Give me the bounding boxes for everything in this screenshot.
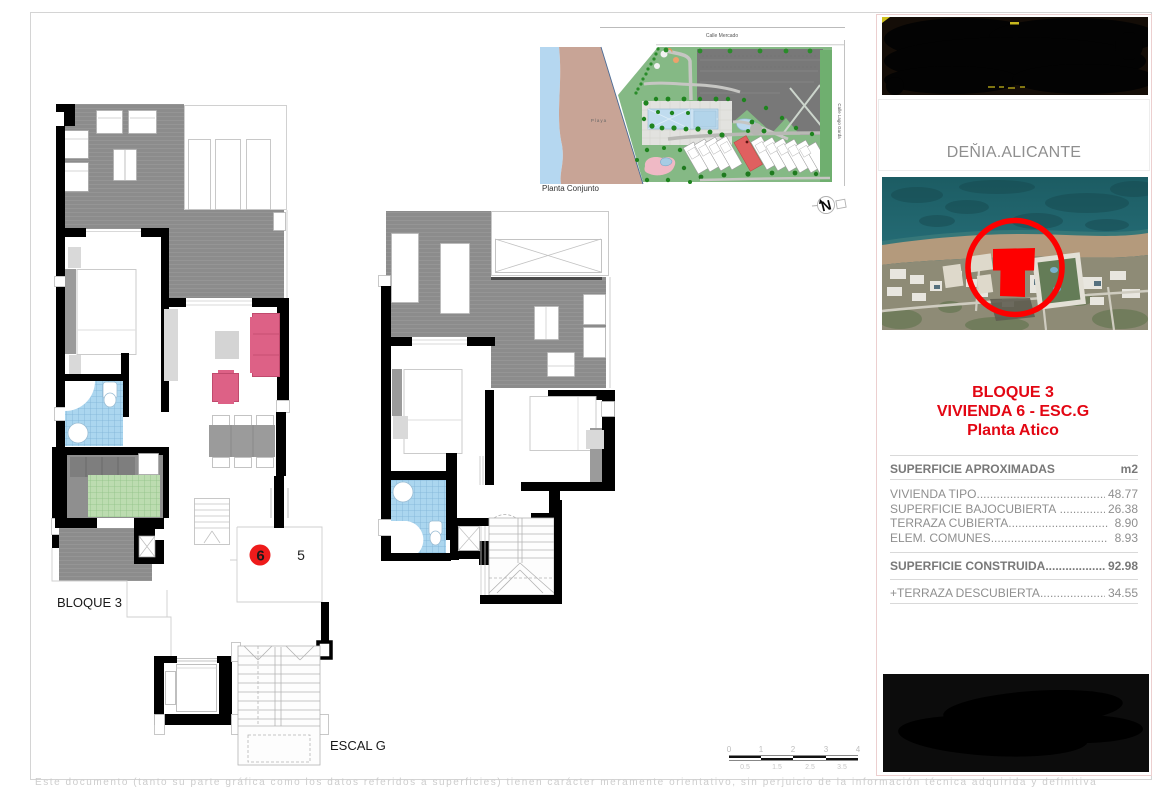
svg-text:Planta Conjunto: Planta Conjunto bbox=[542, 184, 599, 193]
svg-text:ESCAL G: ESCAL G bbox=[330, 738, 386, 753]
svg-text:4: 4 bbox=[856, 745, 861, 754]
svg-text:Playa: Playa bbox=[591, 118, 607, 123]
svg-text:2: 2 bbox=[791, 745, 796, 754]
svg-text:1.5: 1.5 bbox=[772, 764, 782, 771]
svg-text:6: 6 bbox=[256, 548, 264, 565]
svg-text:BLOQUE 3: BLOQUE 3 bbox=[57, 595, 122, 610]
svg-text:Calle Mercado: Calle Mercado bbox=[706, 33, 738, 39]
svg-text:Calle Lago Garda: Calle Lago Garda bbox=[837, 103, 842, 139]
svg-text:3: 3 bbox=[824, 745, 829, 754]
svg-text:2.5: 2.5 bbox=[805, 764, 815, 771]
svg-text:0.5: 0.5 bbox=[740, 764, 750, 771]
svg-text:0: 0 bbox=[727, 745, 732, 754]
svg-text:1: 1 bbox=[759, 745, 764, 754]
svg-text:3.5: 3.5 bbox=[837, 764, 847, 771]
svg-text:5: 5 bbox=[297, 547, 305, 563]
